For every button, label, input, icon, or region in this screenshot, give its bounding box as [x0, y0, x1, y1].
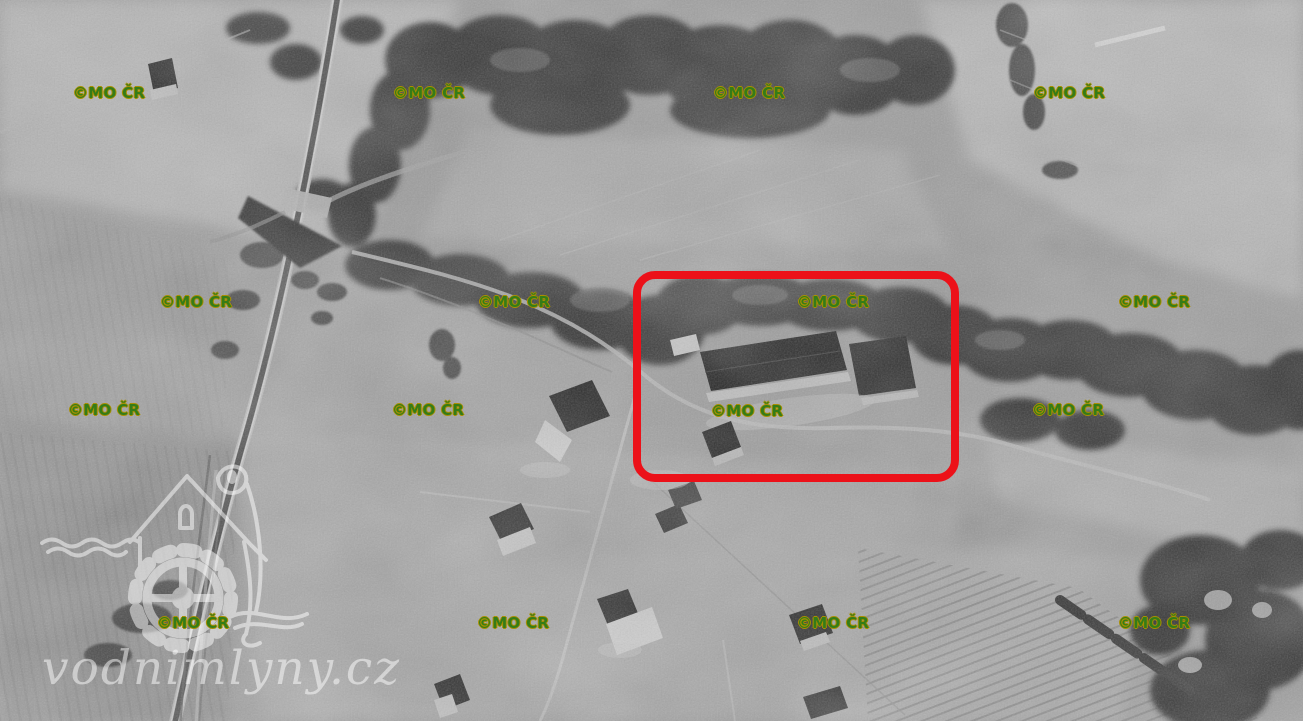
aerial-photo-viewport[interactable]: ©MO ČR©MO ČR©MO ČR©MO ČR©MO ČR©MO ČR©MO … — [0, 0, 1303, 721]
aerial-photo — [0, 0, 1303, 721]
photo-grain — [0, 0, 1303, 721]
